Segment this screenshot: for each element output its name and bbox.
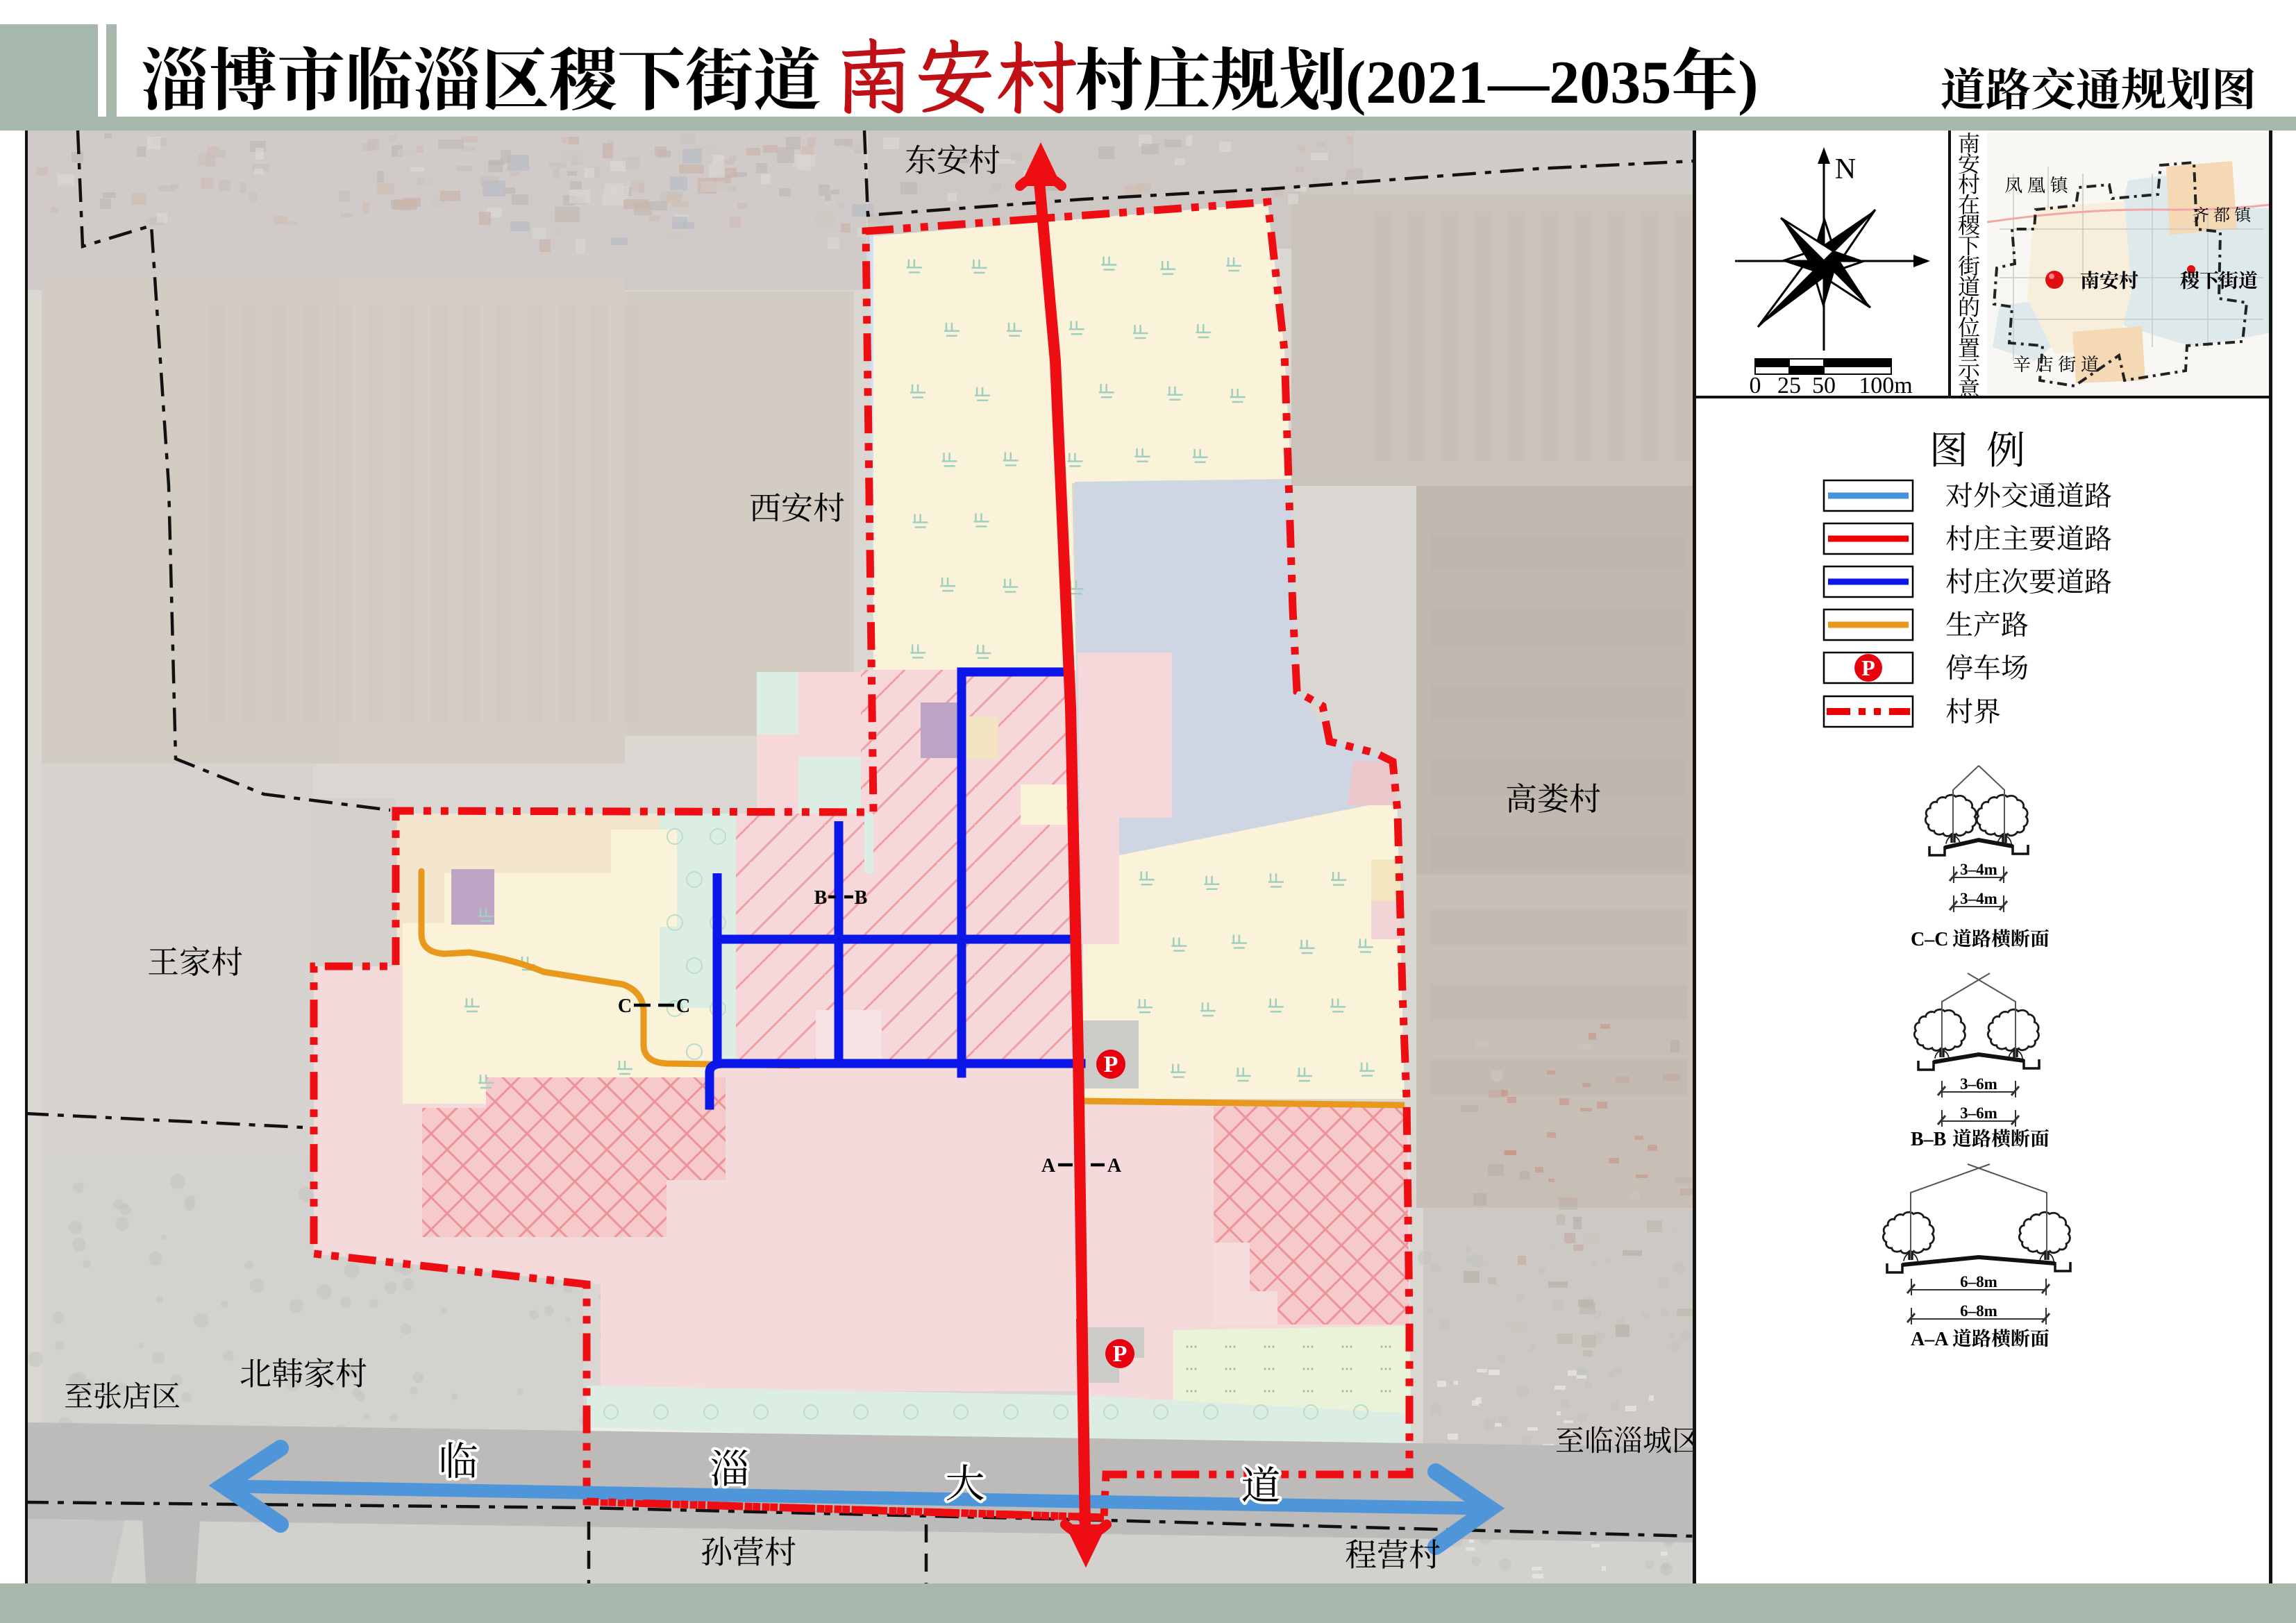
- svg-text:A: A: [1107, 1155, 1122, 1177]
- svg-text:3–4m: 3–4m: [1960, 890, 1997, 907]
- svg-text:A–A: A–A: [1911, 1329, 1949, 1350]
- svg-text:C: C: [618, 995, 632, 1017]
- svg-text:B–B: B–B: [1911, 1129, 1946, 1150]
- svg-text:P: P: [1113, 1341, 1128, 1367]
- svg-text:100m: 100m: [1859, 373, 1912, 398]
- svg-text:B: B: [855, 887, 868, 909]
- svg-text:): ): [1738, 49, 1758, 117]
- svg-text:B: B: [814, 887, 828, 909]
- svg-text:C–C: C–C: [1911, 929, 1948, 950]
- svg-text:0: 0: [1750, 373, 1761, 398]
- svg-text:3–4m: 3–4m: [1960, 861, 1997, 878]
- svg-text:2035: 2035: [1549, 49, 1671, 117]
- svg-text:6–8m: 6–8m: [1960, 1273, 1997, 1290]
- svg-text:3–6m: 3–6m: [1960, 1075, 1997, 1093]
- svg-text:C: C: [676, 995, 690, 1017]
- svg-text:N: N: [1835, 153, 1856, 185]
- svg-text:(2021: (2021: [1346, 49, 1488, 117]
- svg-text:6–8m: 6–8m: [1960, 1302, 1997, 1320]
- svg-text:—: —: [1487, 49, 1550, 117]
- svg-text:P: P: [1861, 655, 1875, 680]
- svg-text:3–6m: 3–6m: [1960, 1104, 1997, 1122]
- svg-text:P: P: [1104, 1052, 1118, 1077]
- svg-text:25: 25: [1777, 373, 1801, 398]
- svg-text:A: A: [1041, 1155, 1056, 1177]
- svg-text:50: 50: [1812, 373, 1836, 398]
